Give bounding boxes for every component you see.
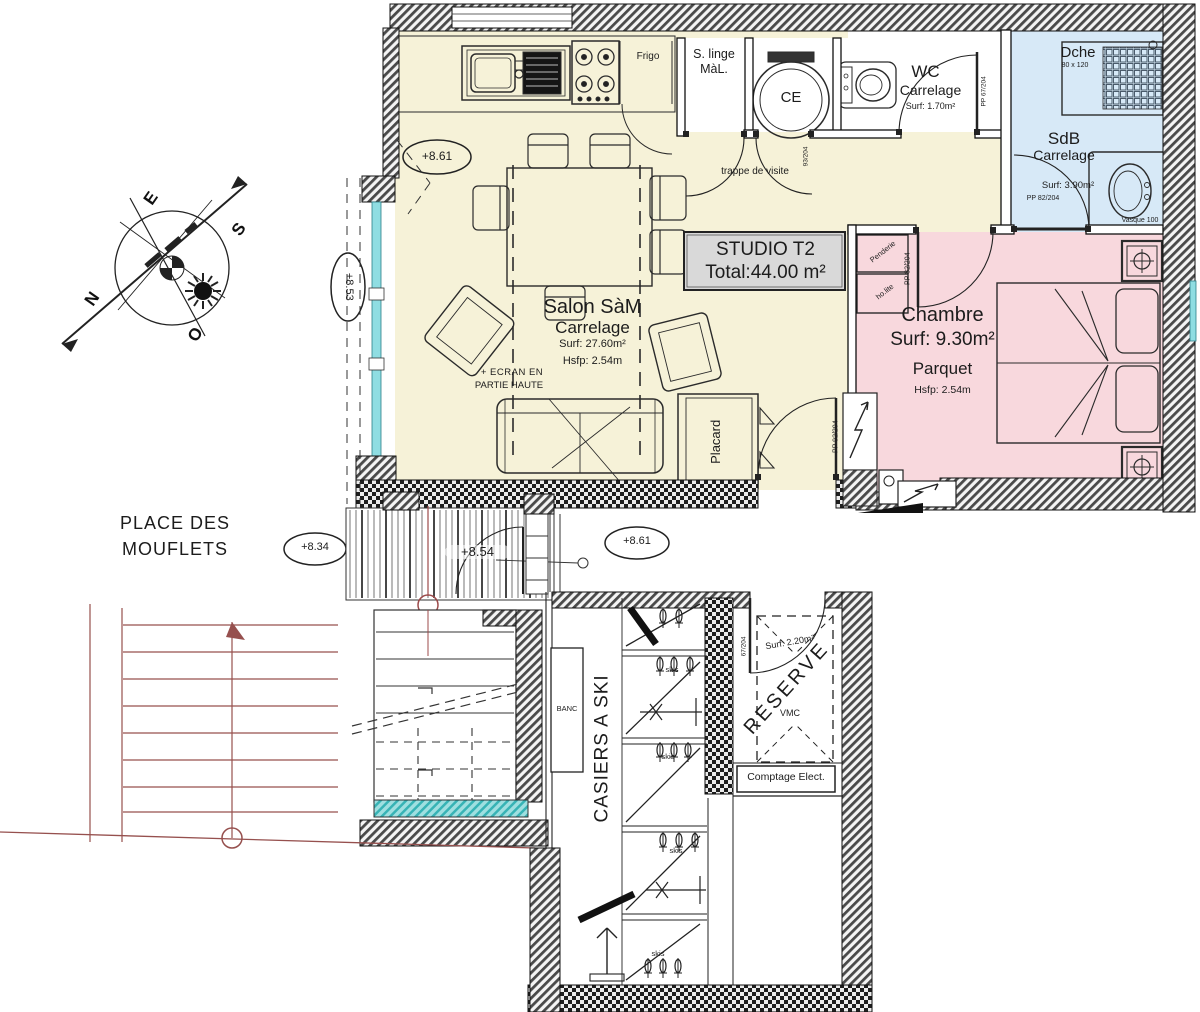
wc-floor: Carrelage (878, 83, 983, 98)
sdb-name: SdB (1010, 130, 1118, 148)
salon-floor: Carrelage (510, 319, 675, 337)
chambre-name: Chambre (855, 305, 1030, 326)
vmc-label: VMC (770, 709, 810, 718)
salon-name: Salon SàM (510, 297, 675, 318)
kitchen-window (452, 7, 572, 28)
banc-label: BANC (551, 705, 583, 713)
interior-stairs (352, 610, 548, 846)
laundry-label-line2: MàL. (684, 63, 744, 76)
place-name-line1: PLACE DES (100, 514, 250, 533)
trappe-label: trappe de visite (695, 167, 815, 178)
vasque-label: Vasque 100 (1108, 217, 1172, 224)
floor-plan: E S N O (0, 0, 1200, 1012)
sdb-floor: Carrelage (1010, 148, 1118, 163)
wc-surface: Surf: 1.70m² (878, 102, 983, 111)
comptage-label: Comptage Elect. (740, 772, 832, 783)
sdb-surface: Surf: 3.90m² (1014, 181, 1122, 191)
wc-name: WC (878, 63, 973, 81)
placard-label: Placard (709, 412, 723, 472)
chambre-height: Hsfp: 2.54m (855, 385, 1030, 396)
elevation-place: +8.34 (285, 542, 345, 554)
skis-icon (644, 608, 699, 978)
title-line1: STUDIO T2 (688, 240, 843, 260)
compass-west: O (184, 324, 207, 346)
skis-label: skis (661, 847, 691, 855)
chambre-window (1190, 281, 1196, 341)
salon-surface: Surf: 27.60m² (510, 339, 675, 351)
elevation-kitchen: +8.61 (407, 150, 467, 163)
skis-label: skis (657, 666, 687, 674)
chambre-floor: Parquet (855, 360, 1030, 378)
compass-south: S (228, 219, 250, 239)
shower-label: Dche (1048, 45, 1108, 61)
elevation-landing: +8.61 (607, 536, 667, 548)
entrance-door-label: PP 92/204 (832, 409, 839, 465)
hall-door-label: 93/204 (804, 131, 811, 181)
chambre-surface: Surf: 9.30m² (855, 330, 1030, 350)
laundry-label-line1: S. linge (684, 48, 744, 61)
salon-height: Hsfp: 2.54m (510, 356, 675, 368)
skis-label: skis (653, 753, 683, 761)
compass-north: N (81, 288, 104, 309)
sun-icon (185, 273, 221, 309)
screen-note-line1: + ECRAN EN (462, 368, 562, 378)
sdb-door-label: PP 82/204 (1012, 195, 1074, 202)
chambre-door-label: PP 82/204 (904, 241, 911, 297)
skis-label: skis (643, 950, 673, 958)
wc-door-label: PP 67/204 (982, 63, 989, 119)
balcony-glazing (372, 202, 381, 458)
place-name-line2: MOUFLETS (100, 540, 250, 559)
compass-east: E (140, 188, 162, 208)
elevation-grating: +8.54 (445, 545, 510, 559)
elevation-balcony: +8.53 (342, 257, 354, 317)
reserve-door-label: 67/204 (742, 621, 749, 671)
title-line2: Total:44.00 m² (688, 263, 843, 283)
shower-size-label: 80 x 120 (1050, 62, 1100, 69)
casiers-label: CASIERS A SKI (593, 677, 613, 822)
compass-rose-icon: E S N O (62, 176, 250, 352)
frigo-label: Frigo (618, 52, 678, 63)
screen-note-line2: PARTIE HAUTE (456, 381, 562, 391)
water-heater-label: CE (771, 90, 811, 106)
